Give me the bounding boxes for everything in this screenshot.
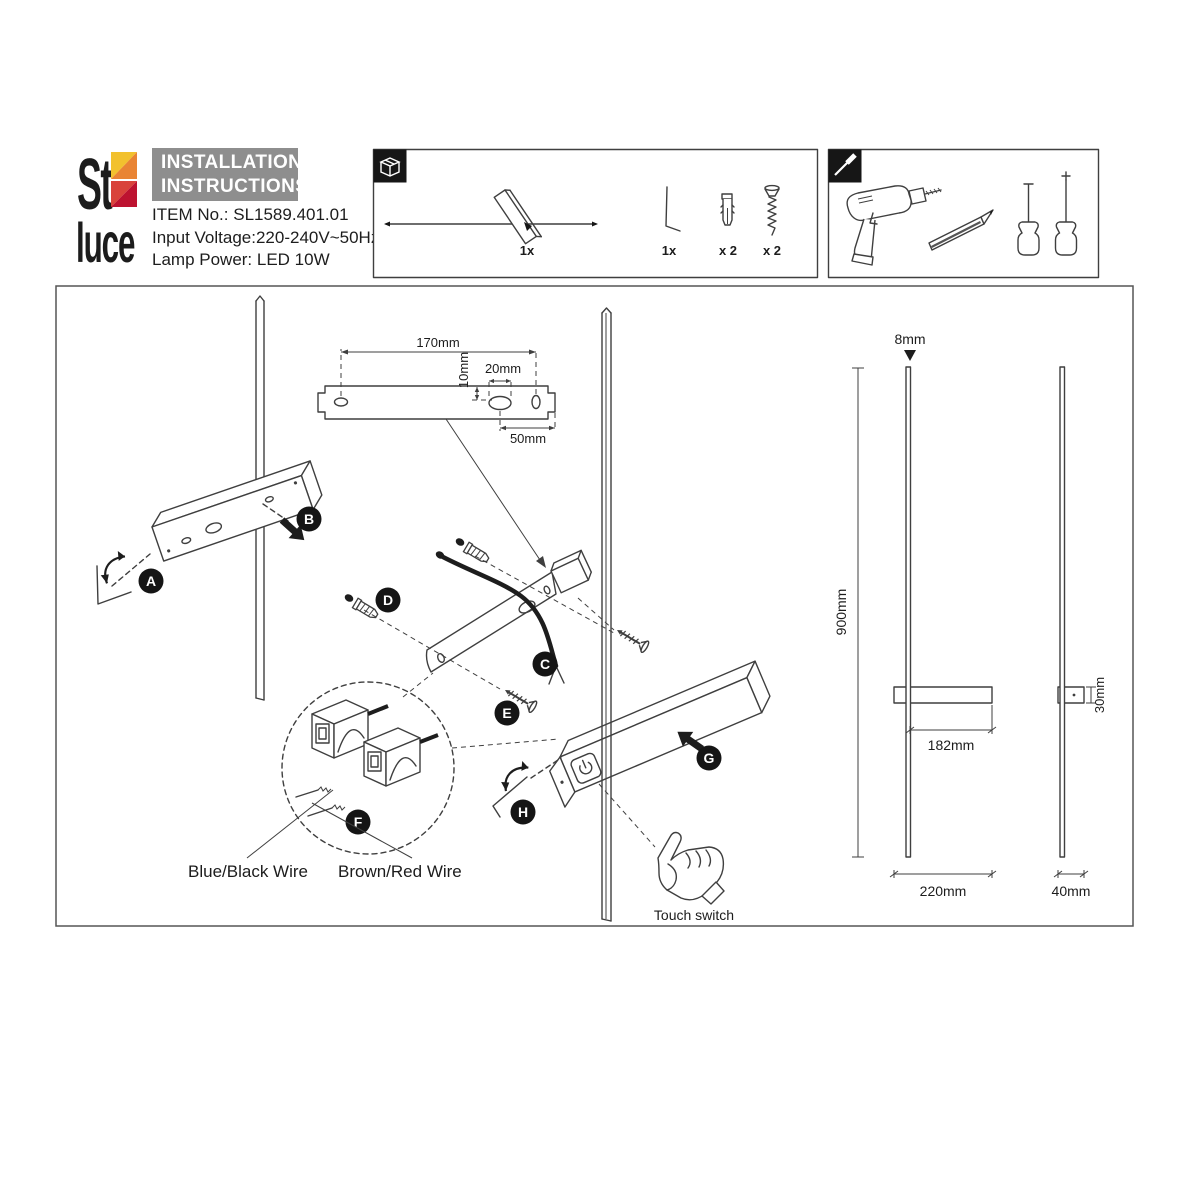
- instruction-sheet: { "header": { "title_line1": "INSTALLATI…: [0, 0, 1200, 1200]
- svg-text:C: C: [540, 656, 550, 672]
- main-diagram: A B 170mm 10mm 20mm: [0, 0, 1200, 1200]
- bracket-step-c: [427, 550, 594, 672]
- svg-text:A: A: [146, 573, 156, 589]
- lamp-body-step-g: [542, 661, 779, 807]
- diagram-border: [56, 286, 1133, 926]
- brown-red-wire-label: Brown/Red Wire: [338, 862, 462, 881]
- body-width-label: 220mm: [920, 883, 967, 899]
- rotation-arrow-h: [500, 758, 530, 794]
- wall-rod-center: [602, 308, 611, 921]
- side-rod: [1060, 367, 1065, 857]
- side-view: 30mm 40mm: [1052, 367, 1107, 899]
- svg-text:H: H: [518, 804, 528, 820]
- hole-dot-d: [343, 593, 354, 604]
- step-label-c: C: [533, 652, 558, 677]
- svg-text:F: F: [354, 814, 363, 830]
- bracket-slot-to-end-label: 50mm: [510, 431, 546, 446]
- step-label-d: D: [376, 588, 401, 613]
- hole-dot-top: [454, 537, 465, 548]
- body-depth-label: 40mm: [1052, 883, 1091, 899]
- mounting-bracket-top-view: 170mm 10mm 20mm 50mm: [318, 335, 555, 568]
- svg-text:E: E: [502, 705, 511, 721]
- wire-connector-2: [364, 728, 438, 786]
- bracket-length-label: 170mm: [416, 335, 459, 350]
- svg-text:G: G: [704, 750, 715, 766]
- bracket-hole-offset-label: 10mm: [456, 352, 471, 388]
- wall-plug-top: [463, 542, 490, 564]
- body-to-end-label: 182mm: [928, 737, 975, 753]
- step-label-b: B: [297, 507, 322, 532]
- touch-leader-line: [599, 784, 655, 847]
- lamp-body-step-ab: [148, 461, 325, 561]
- bracket-slot-width-label: 20mm: [485, 361, 521, 376]
- step-label-h: H: [511, 800, 536, 825]
- leader-blue-black: [247, 790, 333, 858]
- rod-diameter-label: 8mm: [894, 331, 925, 347]
- step-label-a: A: [139, 569, 164, 594]
- alignment-line-rod: [578, 598, 614, 630]
- svg-text:D: D: [383, 592, 393, 608]
- step-label-e: E: [495, 701, 520, 726]
- front-view: 900mm 8mm 182mm 220mm: [833, 331, 996, 899]
- step-label-g: G: [697, 746, 722, 771]
- screw-right: [614, 625, 650, 654]
- blue-black-wire-label: Blue/Black Wire: [188, 862, 308, 881]
- svg-text:B: B: [304, 511, 314, 527]
- step-label-f: F: [346, 810, 371, 835]
- height-label: 900mm: [833, 589, 849, 636]
- body-height-label: 30mm: [1092, 677, 1107, 713]
- front-rod: [906, 367, 911, 857]
- pointing-hand: [658, 833, 724, 905]
- rod-diameter-arrow: [904, 350, 916, 361]
- touch-switch-label: Touch switch: [654, 907, 734, 923]
